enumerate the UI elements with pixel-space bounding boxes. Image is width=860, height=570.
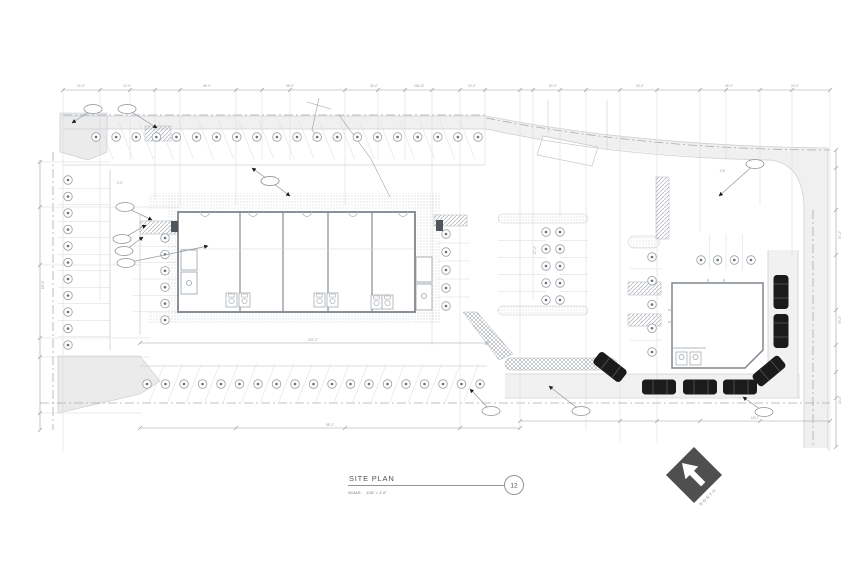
parking-marker-dot bbox=[559, 231, 562, 234]
parking-marker-dot bbox=[67, 261, 70, 264]
dimension-text: 60'-0" bbox=[549, 84, 557, 88]
dimension-text: 57'-2" bbox=[838, 231, 842, 239]
restroom-fixture bbox=[239, 293, 250, 307]
dimension-text: 15'-0" bbox=[77, 84, 85, 88]
parking-marker-dot bbox=[316, 136, 319, 139]
parking-marker-dot bbox=[331, 383, 334, 386]
dimension-text: 236.33' bbox=[414, 84, 425, 88]
dimension-text: 58'-0" bbox=[203, 84, 211, 88]
parking-marker-dot bbox=[164, 270, 167, 273]
parking-marker-dot bbox=[545, 299, 548, 302]
dimension-text: 36'-0" bbox=[286, 84, 294, 88]
access-aisle-east-2 bbox=[628, 314, 661, 326]
parking-marker-dot bbox=[733, 259, 736, 262]
vehicle-body bbox=[683, 380, 717, 395]
restroom-fixture bbox=[314, 293, 325, 307]
middle-double-east bbox=[556, 228, 588, 305]
dimension-text: 24'-0" bbox=[468, 84, 476, 88]
scale-label: SCALE: bbox=[348, 491, 362, 495]
parking-marker-dot bbox=[445, 287, 448, 290]
crosswalk-driveway bbox=[656, 177, 669, 239]
parking-marker-dot bbox=[545, 248, 548, 251]
parking-marker-dot bbox=[201, 383, 204, 386]
callout-bubble bbox=[572, 407, 590, 416]
callout-bubble bbox=[261, 177, 279, 186]
fixture-stall bbox=[327, 293, 338, 307]
parking-marker-dot bbox=[275, 383, 278, 386]
keynote-callout bbox=[116, 203, 152, 221]
utility-box-west bbox=[171, 221, 178, 232]
east-street-pavement bbox=[804, 162, 828, 448]
parking-marker-dot bbox=[396, 136, 399, 139]
main-building bbox=[171, 212, 443, 312]
parking-marker-dot bbox=[750, 259, 753, 262]
parking-marker-dot bbox=[155, 136, 158, 139]
parking-marker-dot bbox=[651, 256, 654, 259]
parking-marker-dot bbox=[195, 136, 198, 139]
parking-marker-dot bbox=[67, 195, 70, 198]
parking-marker-dot bbox=[294, 383, 297, 386]
dimension-text: 165.6' bbox=[41, 280, 45, 289]
north-arrow: NORTH bbox=[666, 447, 722, 507]
parking-marker-dot bbox=[135, 136, 138, 139]
parking-marker-dot bbox=[545, 265, 548, 268]
parking-marker-dot bbox=[238, 383, 241, 386]
fixture-stall bbox=[382, 295, 393, 309]
parking-marker-dot bbox=[559, 248, 562, 251]
dimension-text: 48'-0" bbox=[725, 84, 733, 88]
parking-marker-dot bbox=[67, 311, 70, 314]
dimension-text: 12'-0" bbox=[123, 84, 131, 88]
parking-marker-dot bbox=[423, 383, 426, 386]
restroom-fixture bbox=[226, 293, 237, 307]
parking-marker-dot bbox=[164, 302, 167, 305]
callout-bubble bbox=[84, 105, 102, 114]
callout-bubble bbox=[113, 235, 131, 244]
vehicle bbox=[683, 380, 717, 395]
keynote-callout bbox=[470, 389, 500, 416]
parking-marker-dot bbox=[651, 327, 654, 330]
parking-marker-dot bbox=[67, 294, 70, 297]
vehicle bbox=[723, 380, 757, 395]
fixture-stall bbox=[226, 293, 237, 307]
sidewalk-north bbox=[148, 193, 440, 209]
fixture-stall bbox=[239, 293, 250, 307]
dimension-text: 35'-0" bbox=[636, 84, 644, 88]
parking-marker-dot bbox=[67, 278, 70, 281]
parking-marker-dot bbox=[164, 237, 167, 240]
parking-marker-dot bbox=[716, 259, 719, 262]
utility-box-east bbox=[436, 220, 443, 231]
restroom-fixture bbox=[382, 295, 393, 309]
parking-marker-dot bbox=[368, 383, 371, 386]
vehicle bbox=[642, 380, 676, 395]
vehicle bbox=[774, 275, 789, 309]
parking-marker-dot bbox=[67, 212, 70, 215]
vehicle-body bbox=[642, 380, 676, 395]
parking-marker-dot bbox=[296, 136, 299, 139]
parking-marker-dot bbox=[312, 383, 315, 386]
callout-bubble bbox=[115, 247, 133, 256]
drawing-title: SITE PLAN bbox=[349, 474, 395, 483]
parking-marker-dot bbox=[336, 136, 339, 139]
parking-marker-dot bbox=[445, 269, 448, 272]
callout-bubble bbox=[118, 105, 136, 114]
parking-marker-dot bbox=[235, 136, 238, 139]
parking-marker-dot bbox=[460, 383, 463, 386]
parking-marker-dot bbox=[67, 327, 70, 330]
middle-double-west bbox=[498, 228, 550, 305]
parking-marker-dot bbox=[651, 351, 654, 354]
parking-marker-dot bbox=[559, 282, 562, 285]
parking-marker-dot bbox=[545, 231, 548, 234]
parking-marker-dot bbox=[183, 383, 186, 386]
planter-island-north bbox=[498, 214, 588, 223]
planter-island-south bbox=[498, 306, 588, 315]
parking-marker-dot bbox=[67, 344, 70, 347]
dimension-text: 142.7' bbox=[751, 416, 760, 420]
parking-marker-dot bbox=[700, 259, 703, 262]
dimension-text: 95'-2" bbox=[326, 423, 334, 427]
parking-marker-dot bbox=[445, 233, 448, 236]
callout-bubble bbox=[482, 407, 500, 416]
planter-island-east bbox=[628, 236, 660, 248]
parking-marker-dot bbox=[67, 179, 70, 182]
parking-marker-dot bbox=[651, 279, 654, 282]
title-block: SITE PLAN 12 SCALE: 1/16" = 1'-0" bbox=[348, 474, 524, 495]
site-plan-drawing: 15'-0"12'-0"58'-0"36'-0"30'-0"236.33'24'… bbox=[0, 0, 860, 570]
secondary-building bbox=[668, 279, 763, 368]
callout-bubble bbox=[746, 160, 764, 169]
vehicle-body bbox=[774, 314, 789, 348]
parking-marker-dot bbox=[559, 265, 562, 268]
parking-marker-dot bbox=[436, 136, 439, 139]
dimension-text: 20'-0" bbox=[791, 84, 799, 88]
parking-marker-dot bbox=[445, 305, 448, 308]
parking-marker-dot bbox=[175, 136, 178, 139]
parking-marker-dot bbox=[215, 136, 218, 139]
parking-marker-dot bbox=[457, 136, 460, 139]
parking-marker-dot bbox=[651, 303, 654, 306]
callout-bubble bbox=[116, 203, 134, 212]
parking-marker-dot bbox=[376, 136, 379, 139]
parking-marker-dot bbox=[349, 383, 352, 386]
parking-marker-dot bbox=[164, 383, 167, 386]
restroom-fixture bbox=[371, 295, 382, 309]
site-plan-sheet: 15'-0"12'-0"58'-0"36'-0"30'-0"236.33'24'… bbox=[0, 0, 860, 570]
drive-thru-lane-vertical bbox=[768, 250, 798, 374]
parking-marker-dot bbox=[442, 383, 445, 386]
center-column bbox=[437, 230, 470, 311]
parking-marker-dot bbox=[164, 319, 167, 322]
parking-marker-dot bbox=[115, 136, 118, 139]
keynote-callout bbox=[743, 397, 773, 417]
keynote-callout bbox=[719, 160, 764, 197]
callout-bubble bbox=[117, 259, 135, 268]
parking-marker-dot bbox=[220, 383, 223, 386]
parking-marker-dot bbox=[67, 245, 70, 248]
dimension-text: 24'-0" bbox=[838, 396, 842, 404]
northeast-row bbox=[697, 234, 756, 270]
vehicle bbox=[774, 314, 789, 348]
parking-marker-dot bbox=[559, 299, 562, 302]
parking-marker-dot bbox=[276, 136, 279, 139]
dimension-text: 35'-0" bbox=[838, 316, 842, 324]
parking-marker-dot bbox=[545, 282, 548, 285]
parking-marker-dot bbox=[416, 136, 419, 139]
parking-marker-dot bbox=[257, 383, 260, 386]
parking-marker-dot bbox=[95, 136, 98, 139]
detail-number: 12 bbox=[510, 483, 518, 490]
restroom-fixture bbox=[327, 293, 338, 307]
dimension-text: 5'-0" bbox=[117, 181, 123, 185]
west-outer-column bbox=[58, 176, 110, 350]
south-angled-row bbox=[143, 364, 485, 402]
parking-marker-dot bbox=[479, 383, 482, 386]
parking-marker-dot bbox=[445, 251, 448, 254]
dimension-text: 178 bbox=[719, 169, 725, 173]
parking-marker-dot bbox=[477, 136, 480, 139]
parking-marker-dot bbox=[256, 136, 259, 139]
vehicle-body bbox=[774, 275, 789, 309]
parking-marker-dot bbox=[386, 383, 389, 386]
parking-marker-dot bbox=[405, 383, 408, 386]
scale-value: 1/16" = 1'-0" bbox=[366, 491, 387, 495]
dimension-text: 202'-0" bbox=[308, 338, 318, 342]
parking-marker-dot bbox=[356, 136, 359, 139]
fixture-stall bbox=[314, 293, 325, 307]
parking-marker-dot bbox=[146, 383, 149, 386]
dimension-text: 30'-0" bbox=[370, 84, 378, 88]
vehicle-body bbox=[723, 380, 757, 395]
dimension-text: 27'-2" bbox=[533, 246, 537, 254]
diagonal-walkway bbox=[463, 312, 513, 360]
parking-marker-dot bbox=[67, 228, 70, 231]
parking-marker-dot bbox=[164, 286, 167, 289]
access-aisle-east-1 bbox=[628, 282, 661, 295]
fixture-stall bbox=[371, 295, 382, 309]
